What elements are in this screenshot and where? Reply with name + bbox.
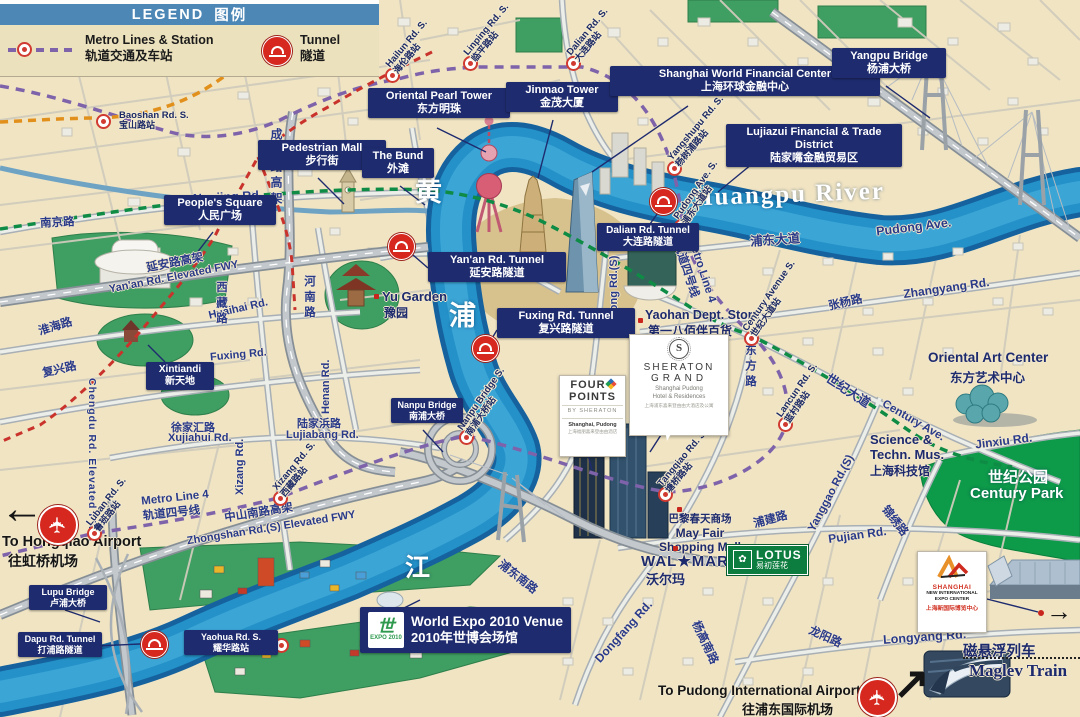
legend-title-en: LEGEND bbox=[132, 7, 204, 23]
road-nanjing-cn: 南京路 bbox=[40, 213, 75, 231]
four-points-pinwheel-icon bbox=[605, 378, 616, 389]
sheraton-monogram-icon: S bbox=[669, 339, 689, 359]
legend-title-cn: 图例 bbox=[214, 4, 247, 25]
tunnel-icon-dapu bbox=[141, 631, 168, 658]
poi-walmart-cn: 沃尔玛 bbox=[646, 569, 685, 588]
label-yanan-tunnel: Yan'an Rd. Tunnel延安路隧道 bbox=[428, 252, 566, 282]
road-henan-cn: 河南路 bbox=[301, 275, 317, 355]
river-char-jiang: 江 bbox=[405, 548, 430, 584]
walmart-dot bbox=[673, 546, 678, 551]
four-points-logo-box: FOUR POINTS BY SHERATON Shanghai, Pudong… bbox=[559, 375, 626, 457]
label-xintiandi: Xintiandi新天地 bbox=[146, 362, 214, 390]
label-nanpu-bridge: Nanpu Bridge南浦大桥 bbox=[391, 398, 463, 423]
label-dapu-tunnel: Dapu Rd. Tunnel打浦路隧道 bbox=[18, 632, 102, 657]
tunnel-icon bbox=[262, 36, 292, 66]
poi-oriental-art-cn: 东方艺术中心 bbox=[950, 367, 1025, 386]
label-jinmao-tower: Jinmao Tower金茂大厦 bbox=[506, 82, 618, 112]
pudong-airplane-icon: ✈ bbox=[858, 678, 897, 717]
pudong-airport-cn: 往浦东国际机场 bbox=[742, 699, 833, 717]
legend-tunnel-cn: 隧道 bbox=[300, 49, 340, 65]
expo-2010-logo: 世 EXPO 2010 bbox=[368, 612, 404, 648]
road-dongfang-cn: 东方路 bbox=[742, 344, 758, 414]
poi-yu-garden-cn: 豫园 bbox=[384, 304, 408, 321]
legend-metro-en: Metro Lines & Station bbox=[85, 33, 213, 49]
poi-yu-garden-en: Yu Garden bbox=[382, 289, 447, 304]
label-yangpu-bridge: Yangpu Bridge杨浦大桥 bbox=[832, 48, 946, 78]
maglev-dotted-line bbox=[963, 657, 1080, 659]
tunnel-icon-yanan bbox=[388, 233, 415, 260]
expo-dome bbox=[377, 592, 403, 608]
yu-garden-dot bbox=[374, 294, 379, 299]
label-oriental-pearl-tower: Oriental Pearl Tower东方明珠 bbox=[368, 88, 510, 118]
legend-metro-label: Metro Lines & Station 轨道交通及车站 bbox=[85, 33, 213, 64]
legend-title-bar: LEGEND 图例 bbox=[0, 4, 379, 25]
sniec-triangle-icon bbox=[935, 555, 969, 579]
lotus-logo: ✿ LOTUS易初莲花 bbox=[727, 545, 808, 575]
road-lujiabang-en: Lujiabang Rd. bbox=[286, 429, 359, 441]
label-lujiazui: Lujiazui Financial & Trade District陆家嘴金融… bbox=[726, 124, 902, 167]
station-icon-baoshan bbox=[96, 114, 111, 129]
road-xizang-en: Xizang Rd. bbox=[234, 439, 246, 495]
sniec-building bbox=[988, 556, 1080, 599]
poi-century-park-en: Century Park bbox=[970, 485, 1063, 502]
poi-yaohan-en: Yaohan Dept. Store bbox=[645, 308, 760, 322]
label-world-expo: 世 EXPO 2010 World Expo 2010 Venue2010年世博… bbox=[360, 607, 571, 653]
poi-century-park-cn: 世纪公园 bbox=[988, 466, 1048, 487]
yaohan-dot bbox=[638, 318, 643, 323]
pudong-arrow-icon: ↗ bbox=[893, 662, 930, 706]
road-xujiahui-en: Xujiahui Rd. bbox=[168, 432, 232, 444]
lotus-flower-icon: ✿ bbox=[733, 550, 752, 569]
legend-tunnel-en: Tunnel bbox=[300, 33, 340, 49]
tunnel-icon-fuxing bbox=[472, 335, 499, 362]
poi-maglev-en: Maglev Train bbox=[969, 661, 1067, 681]
label-yaohua-station: Yaohua Rd. S.耀华路站 bbox=[184, 630, 278, 655]
legend-panel: Metro Lines & Station 轨道交通及车站 Tunnel 隧道 bbox=[0, 25, 379, 77]
label-fuxing-tunnel: Fuxing Rd. Tunnel复兴路隧道 bbox=[497, 308, 635, 338]
hongqiao-airport-cn: 往虹桥机场 bbox=[8, 551, 78, 571]
sniec-location-dot bbox=[1038, 610, 1044, 616]
road-pudongave-cn: 浦东大道 bbox=[749, 227, 800, 249]
legend-tunnel-label: Tunnel 隧道 bbox=[300, 33, 340, 64]
poi-walmart-en: WAL★MART bbox=[641, 552, 739, 570]
legend-metro-cn: 轨道交通及车站 bbox=[85, 49, 213, 65]
poi-oriental-art-en: Oriental Art Center bbox=[928, 350, 1048, 365]
label-the-bund: The Bund外滩 bbox=[362, 148, 434, 178]
river-char-pu: 浦 bbox=[449, 294, 476, 333]
pudong-airport-en: To Pudong International Airport bbox=[658, 683, 860, 698]
hongqiao-airplane-icon: ✈ bbox=[38, 505, 78, 545]
sheraton-grand-logo-box: S SHERATON GRAND Shanghai PudongHotel & … bbox=[629, 334, 729, 436]
sniec-arrow-icon: → bbox=[1046, 598, 1072, 624]
road-xizang-cn: 西藏路 bbox=[213, 281, 229, 361]
label-lupu-bridge: Lupu Bridge卢浦大桥 bbox=[29, 585, 107, 610]
poi-science-museum: Science & Techn. Mus. 上海科技馆 bbox=[870, 432, 944, 479]
road-henan-en: Henan Rd. bbox=[320, 360, 332, 414]
legend: LEGEND 图例 Metro Lines & Station 轨道交通及车站 … bbox=[0, 0, 379, 77]
shanghai-tourist-map: LEGEND 图例 Metro Lines & Station 轨道交通及车站 … bbox=[0, 0, 1080, 717]
station-baoshan: Baoshan Rd. S.宝山路站 bbox=[119, 111, 189, 131]
sniec-logo-box: SHANGHAI NEW INTERNATIONAL EXPO CENTER 上… bbox=[917, 551, 987, 633]
label-peoples-square: People's Square人民广场 bbox=[164, 195, 276, 225]
metro-station-icon bbox=[17, 42, 32, 57]
label-dalian-tunnel: Dalian Rd. Tunnel大连路隧道 bbox=[597, 223, 699, 251]
